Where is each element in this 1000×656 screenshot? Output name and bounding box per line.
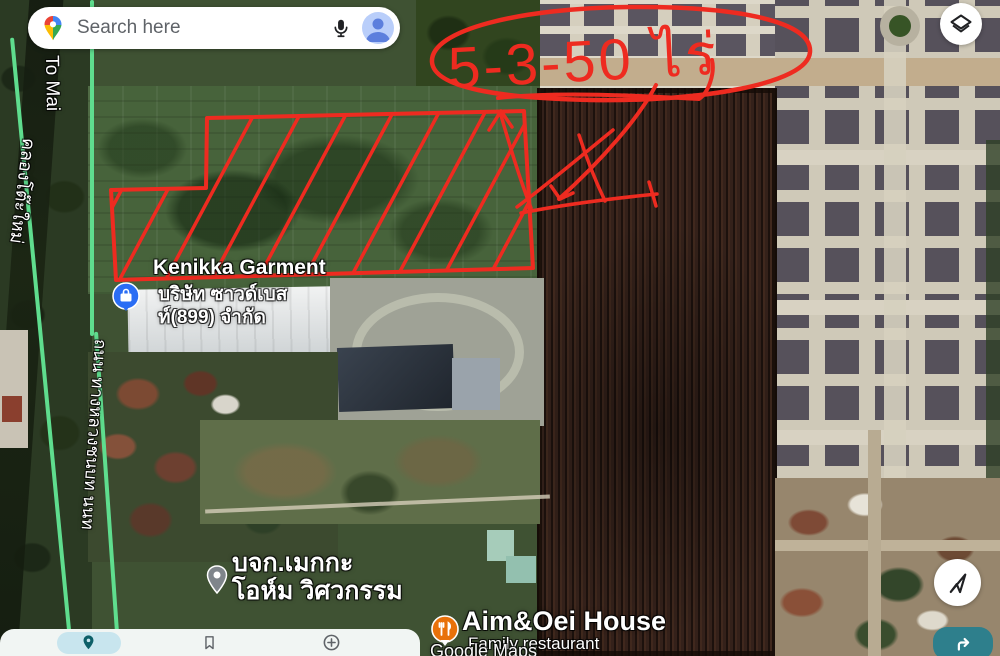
layers-button[interactable] bbox=[940, 3, 982, 45]
store-icon[interactable] bbox=[111, 282, 141, 316]
bookmark-icon bbox=[201, 634, 218, 651]
dirt-road bbox=[868, 430, 881, 656]
mic-icon[interactable] bbox=[330, 17, 352, 39]
teal-shed bbox=[506, 556, 536, 583]
area-measurement-text: 5-3-50 ไร่ bbox=[446, 7, 722, 114]
plus-circle-icon bbox=[322, 633, 341, 652]
navigate-button[interactable] bbox=[934, 559, 981, 606]
poi-label-restaurant[interactable]: Aim&Oei House bbox=[462, 606, 666, 637]
account-avatar[interactable] bbox=[362, 12, 394, 44]
poi-label-garment[interactable]: Kenikka Garment bbox=[153, 256, 326, 280]
estate-road bbox=[884, 0, 906, 478]
road-junction bbox=[0, 330, 28, 448]
dirt-road bbox=[775, 540, 1000, 551]
google-maps-app: 5-3-50 ไร่ To Mai คลองโต๊ะใหม่ ถนน ทางหล… bbox=[0, 0, 1000, 656]
place-pin-icon[interactable] bbox=[203, 564, 231, 598]
red-roof-house bbox=[2, 396, 22, 422]
navigation-arrow-icon bbox=[943, 568, 972, 597]
search-input[interactable]: Search here bbox=[77, 17, 330, 39]
road-label-to-mai: To Mai bbox=[40, 55, 63, 111]
directions-button[interactable] bbox=[933, 627, 993, 656]
location-pin-icon bbox=[80, 634, 97, 651]
dark-roof-house bbox=[337, 344, 455, 412]
tab-saved[interactable] bbox=[178, 632, 242, 654]
bottom-navigation-bar bbox=[0, 629, 420, 656]
plowed-field bbox=[537, 88, 777, 656]
poi-label-mega[interactable]: บจก.เมกกะ โอห์ม วิศวกรรม bbox=[232, 549, 403, 605]
road-line bbox=[90, 0, 94, 336]
directions-arrow-icon bbox=[952, 633, 974, 655]
roundabout bbox=[880, 6, 920, 46]
tab-explore[interactable] bbox=[57, 632, 121, 654]
poi-label-garment-thai[interactable]: บริษัท ซาวด์เบส ท์(899) จำกัด bbox=[158, 283, 287, 329]
layers-icon bbox=[949, 12, 973, 36]
trees-edge bbox=[986, 140, 1000, 480]
gray-roof-house bbox=[452, 358, 500, 410]
tab-contribute[interactable] bbox=[299, 632, 363, 654]
search-bar[interactable]: Search here bbox=[28, 7, 400, 49]
google-maps-pin-logo bbox=[41, 15, 65, 41]
google-maps-watermark: Google Maps bbox=[430, 641, 537, 656]
